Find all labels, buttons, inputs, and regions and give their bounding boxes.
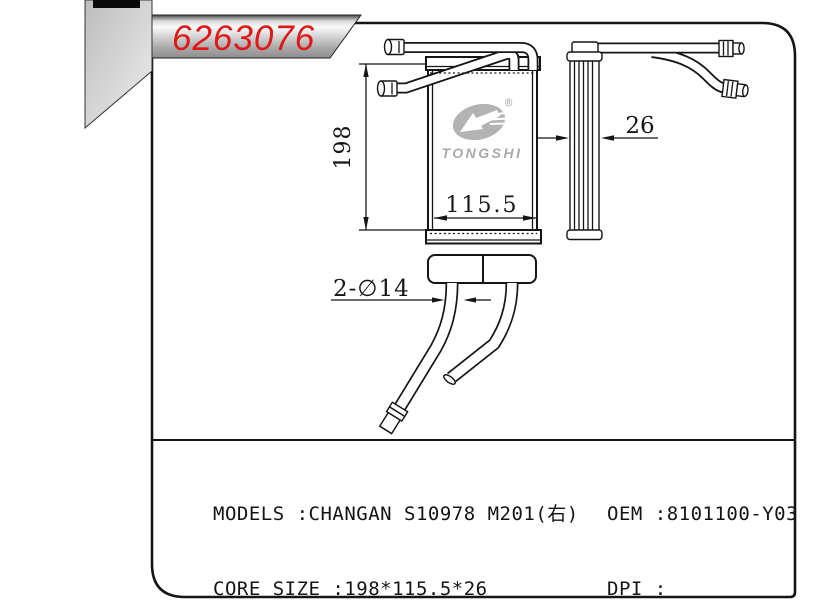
logo-registered-mark: ® — [505, 96, 513, 110]
title-banner: 6263076 — [148, 15, 361, 58]
bottom-view: 2-∅14 — [331, 255, 536, 435]
dim-core-width: 115.5 — [446, 193, 519, 218]
side-upper-fitting — [719, 41, 744, 57]
spec-left-column: MODELS :CHANGAN S10978 M201(右) CORE SIZE… — [213, 452, 579, 616]
side-view: 26 — [537, 41, 749, 240]
dim-pipe-diameter: 2-∅14 — [333, 276, 410, 302]
spec-core-size: CORE SIZE :198*115.5*26 — [213, 577, 579, 602]
spec-right-column: OEM :8101100-Y03 DPI : NISSENS : — [607, 452, 798, 616]
side-lower-fitting — [722, 80, 749, 100]
drawing-sheet: ® TONGSHI 198 — [0, 0, 827, 616]
dim-core-depth: 26 — [625, 113, 654, 139]
bottom-header — [426, 230, 541, 244]
front-view: ® TONGSHI 198 — [331, 40, 541, 244]
part-number: 6263076 — [172, 19, 315, 58]
spec-oem: OEM :8101100-Y03 — [607, 502, 798, 527]
spec-models: MODELS :CHANGAN S10978 M201(右) — [213, 502, 579, 527]
corner-ribbon — [85, 0, 152, 128]
logo-wordmark: TONGSHI — [441, 145, 522, 161]
dim-core-height: 198 — [331, 125, 356, 170]
ribbon-black-band — [93, 0, 140, 8]
spec-dpi: DPI : — [607, 577, 798, 602]
